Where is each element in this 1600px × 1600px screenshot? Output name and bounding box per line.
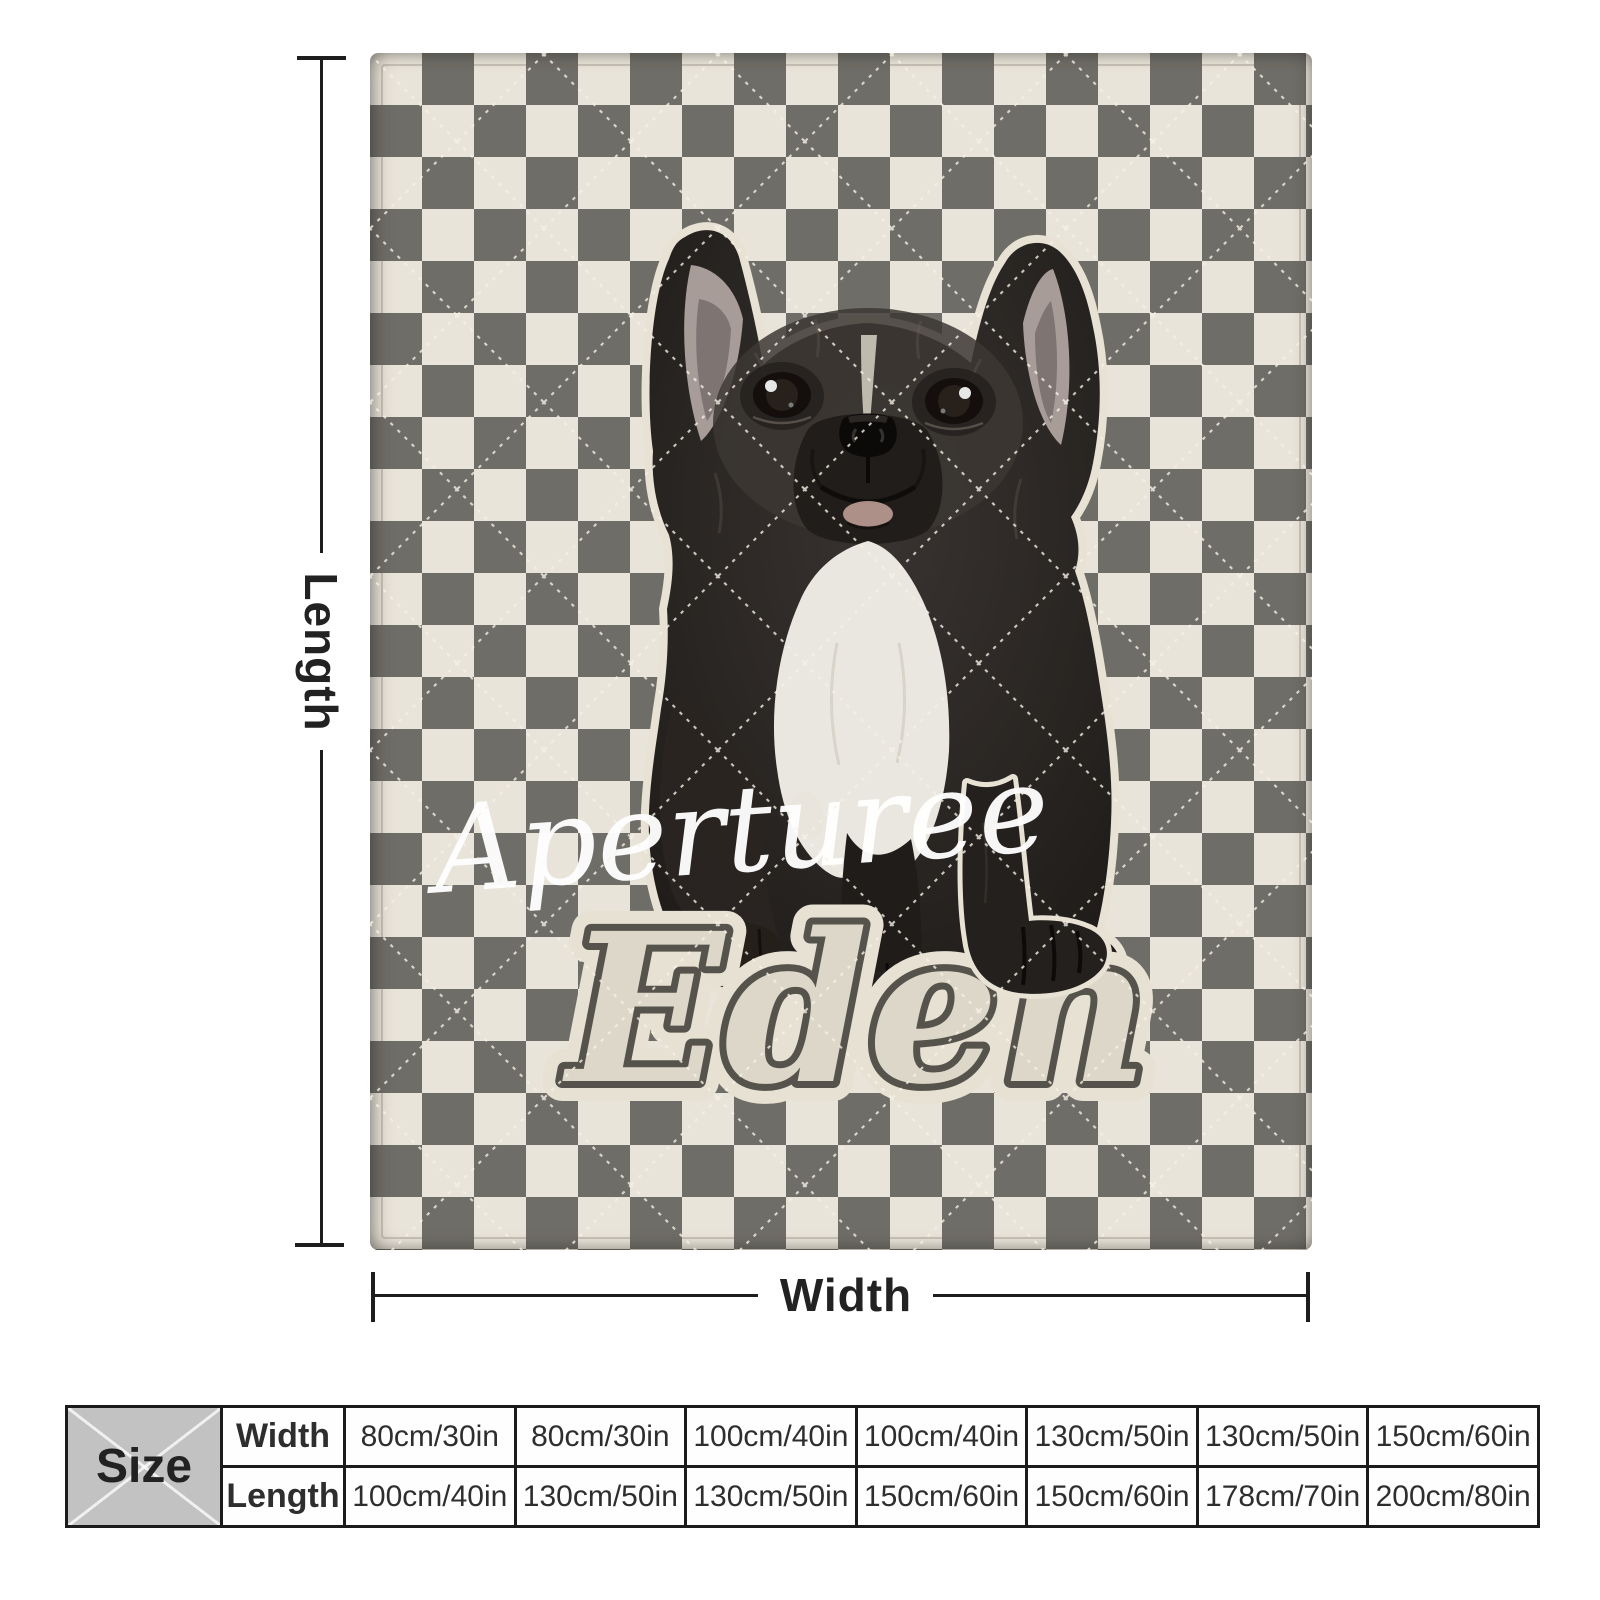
length-value-cell: 150cm/60in (856, 1467, 1027, 1527)
width-line-left-cap (371, 1272, 375, 1322)
size-table-length-row: Length 100cm/40in 130cm/50in 130cm/50in … (67, 1467, 1539, 1527)
size-table-width-row: Size Width 80cm/30in 80cm/30in 100cm/40i… (67, 1407, 1539, 1467)
size-table: Size Width 80cm/30in 80cm/30in 100cm/40i… (65, 1405, 1540, 1528)
length-value-cell: 178cm/70in (1197, 1467, 1368, 1527)
width-value-cell: 80cm/30in (345, 1407, 516, 1467)
quilt-stitch-overlay (370, 53, 1312, 1250)
length-line-bottom-cap (295, 1243, 344, 1247)
length-value-cell: 100cm/40in (345, 1467, 516, 1527)
length-value-cell: 130cm/50in (686, 1467, 857, 1527)
product-image: Eden Eden Aperturee Length Width Size (0, 0, 1600, 1600)
size-table-corner-cell: Size (67, 1407, 222, 1527)
width-value-cell: 130cm/50in (1027, 1407, 1198, 1467)
size-table-length-row-label: Length (222, 1467, 345, 1527)
length-line-top-segment (320, 58, 323, 553)
length-line-top-cap (297, 56, 346, 60)
size-table-width-row-label: Width (222, 1407, 345, 1467)
width-value-cell: 80cm/30in (515, 1407, 686, 1467)
length-value-cell: 150cm/60in (1027, 1467, 1198, 1527)
width-value-cell: 130cm/50in (1197, 1407, 1368, 1467)
blanket-preview: Eden Eden Aperturee (370, 53, 1312, 1250)
width-value-cell: 100cm/40in (686, 1407, 857, 1467)
width-value-cell: 150cm/60in (1368, 1407, 1539, 1467)
width-label: Width (780, 1268, 912, 1322)
length-value-cell: 200cm/80in (1368, 1467, 1539, 1527)
width-line-left-segment (373, 1294, 758, 1297)
length-value-cell: 130cm/50in (515, 1467, 686, 1527)
width-line-right-cap (1306, 1272, 1310, 1322)
length-line-bottom-segment (320, 750, 323, 1245)
length-label: Length (294, 572, 348, 731)
width-line-right-segment (933, 1294, 1309, 1297)
blanket-print: Eden Eden Aperturee (370, 53, 1312, 1250)
width-value-cell: 100cm/40in (856, 1407, 1027, 1467)
